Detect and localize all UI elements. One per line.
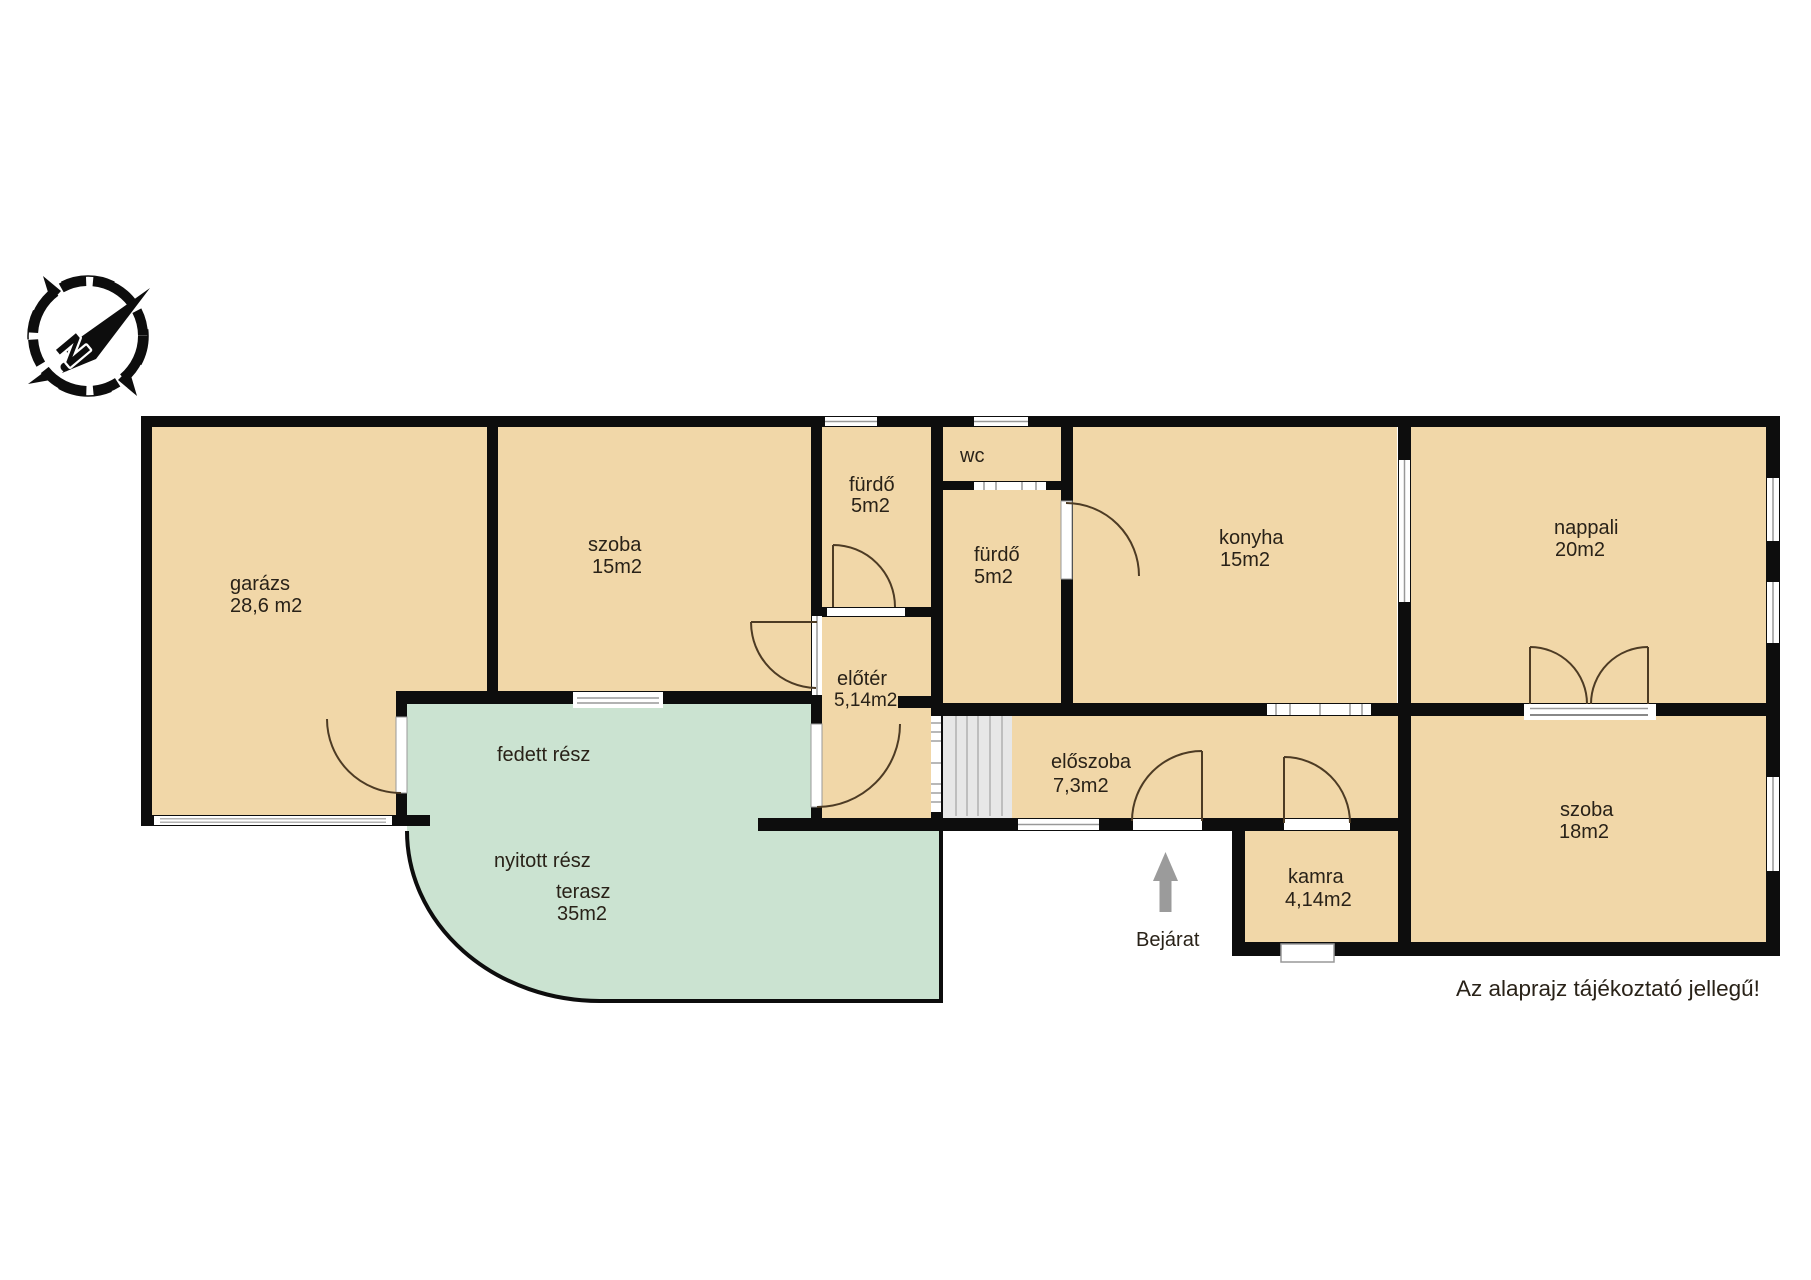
svg-text:Az alaprajz tájékoztató jelleg: Az alaprajz tájékoztató jellegű!	[1456, 976, 1760, 1001]
svg-text:7,3m2: 7,3m2	[1053, 775, 1109, 797]
svg-text:előtér: előtér	[837, 668, 887, 690]
svg-text:4,14m2: 4,14m2	[1285, 889, 1352, 911]
svg-text:15m2: 15m2	[592, 556, 642, 578]
svg-text:28,6 m2: 28,6 m2	[230, 595, 302, 617]
svg-text:fürdő: fürdő	[974, 544, 1020, 566]
svg-text:szoba: szoba	[1560, 799, 1614, 821]
svg-text:wc: wc	[959, 445, 984, 467]
svg-text:5m2: 5m2	[851, 495, 890, 517]
svg-text:18m2: 18m2	[1559, 821, 1609, 843]
svg-text:Bejárat: Bejárat	[1136, 929, 1200, 951]
svg-text:35m2: 35m2	[557, 903, 607, 925]
svg-text:nappali: nappali	[1554, 517, 1619, 539]
svg-text:5,14m2: 5,14m2	[834, 690, 897, 711]
svg-text:20m2: 20m2	[1555, 539, 1605, 561]
svg-text:5m2: 5m2	[974, 566, 1013, 588]
svg-text:fürdő: fürdő	[849, 474, 895, 496]
svg-text:terasz: terasz	[556, 881, 610, 903]
svg-text:konyha: konyha	[1219, 527, 1284, 549]
svg-text:szoba: szoba	[588, 534, 642, 556]
svg-text:nyitott rész: nyitott rész	[494, 850, 591, 872]
svg-text:kamra: kamra	[1288, 866, 1344, 888]
svg-text:15m2: 15m2	[1220, 549, 1270, 571]
svg-text:garázs: garázs	[230, 573, 290, 595]
svg-text:fedett rész: fedett rész	[497, 744, 590, 766]
svg-text:előszoba: előszoba	[1051, 751, 1132, 773]
